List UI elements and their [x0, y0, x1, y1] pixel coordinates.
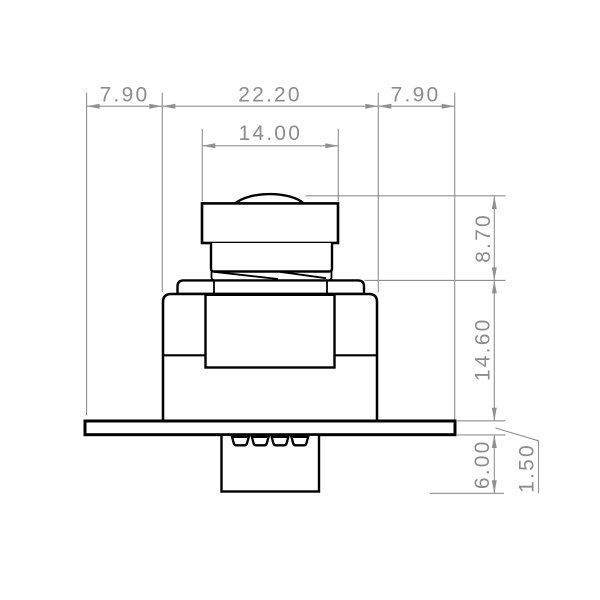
svg-text:22.20: 22.20: [238, 84, 302, 107]
svg-text:14.60: 14.60: [472, 318, 495, 382]
svg-text:7.90: 7.90: [391, 84, 441, 107]
svg-text:14.00: 14.00: [239, 122, 303, 145]
svg-text:7.90: 7.90: [100, 84, 150, 107]
svg-text:8.70: 8.70: [472, 213, 495, 263]
svg-text:6.00: 6.00: [471, 439, 494, 489]
svg-text:1.50: 1.50: [516, 443, 539, 493]
